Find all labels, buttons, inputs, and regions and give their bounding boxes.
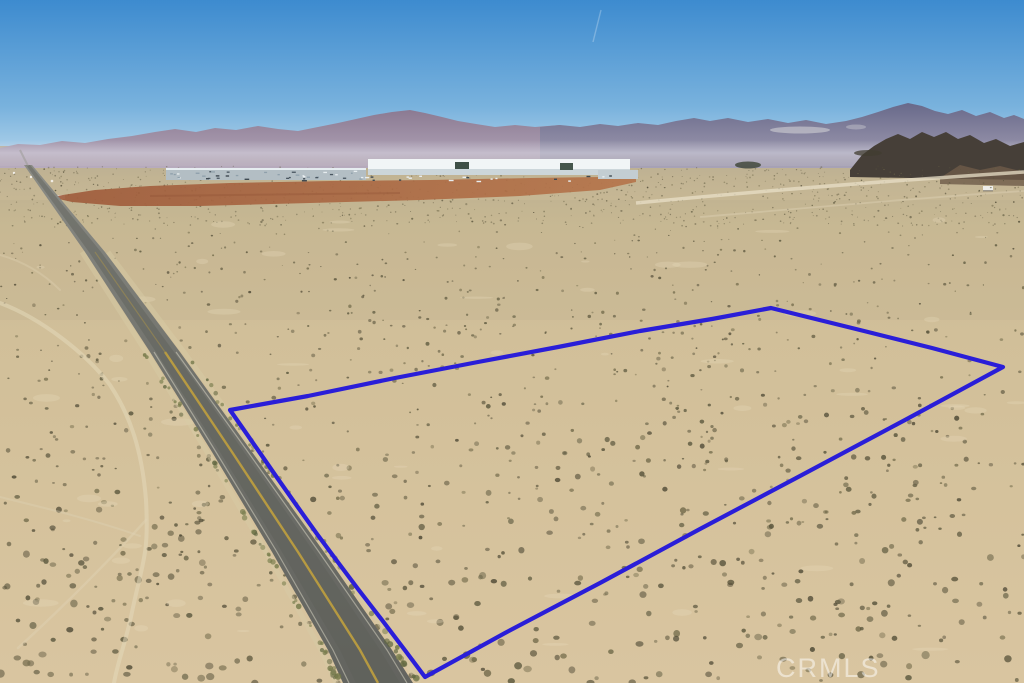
distant-building-shadow	[983, 190, 993, 192]
dark-unit	[455, 162, 469, 169]
distant-structure	[51, 180, 54, 183]
desert-mid-band	[0, 200, 1024, 320]
dark-vegetation-cluster	[854, 150, 882, 156]
aerial-photo: CRMLS	[0, 0, 1024, 683]
dark-unit	[560, 163, 573, 170]
annex-building	[598, 170, 638, 179]
light-slope-patch	[770, 127, 830, 134]
crmls-watermark: CRMLS	[776, 653, 881, 683]
light-slope-patch-small	[846, 125, 866, 130]
aerial-photo-canvas: CRMLS	[0, 0, 1024, 683]
warehouse-face	[368, 169, 630, 175]
dark-vegetation-cluster	[735, 162, 761, 169]
